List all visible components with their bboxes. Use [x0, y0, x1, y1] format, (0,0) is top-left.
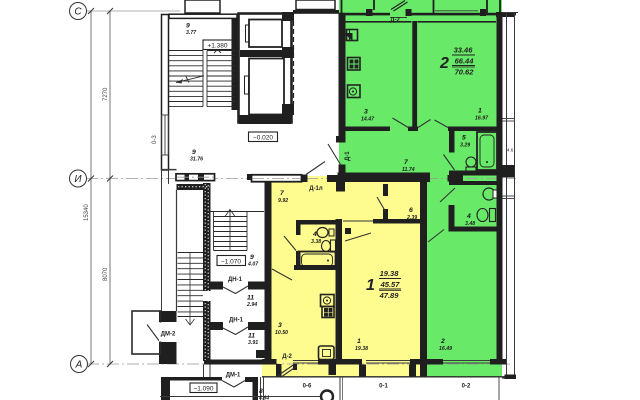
svg-text:1: 1: [478, 108, 482, 115]
svg-text:ДН-1: ДН-1: [228, 277, 243, 283]
svg-text:2: 2: [440, 338, 445, 345]
svg-text:47.89: 47.89: [379, 291, 400, 300]
svg-text:8: 8: [259, 388, 263, 395]
svg-text:70.62: 70.62: [455, 68, 475, 77]
svg-text:11: 11: [248, 333, 255, 340]
svg-text:3.48: 3.48: [465, 221, 475, 227]
svg-text:1: 1: [366, 277, 375, 294]
svg-text:9: 9: [186, 23, 190, 30]
svg-text:3.29: 3.29: [460, 143, 470, 149]
svg-text:15340: 15340: [84, 204, 90, 221]
svg-text:Д-2: Д-2: [282, 354, 292, 360]
svg-text:19.38: 19.38: [355, 346, 368, 352]
svg-text:ДН-1: ДН-1: [229, 318, 244, 324]
svg-text:1: 1: [357, 338, 361, 345]
svg-text:И: И: [74, 174, 82, 185]
svg-text:11.74: 11.74: [402, 167, 415, 173]
svg-text:10.50: 10.50: [275, 330, 288, 336]
svg-text:66.44: 66.44: [455, 57, 475, 66]
svg-text:4: 4: [466, 213, 471, 220]
svg-text:4.07: 4.07: [247, 262, 259, 268]
svg-text:9: 9: [192, 149, 196, 156]
svg-text:−1.070: −1.070: [221, 259, 241, 266]
svg-text:16.49: 16.49: [439, 346, 452, 352]
svg-text:14.47: 14.47: [361, 117, 375, 123]
svg-text:33.46: 33.46: [454, 46, 474, 55]
svg-text:3: 3: [278, 322, 282, 329]
svg-text:ДМ-1: ДМ-1: [226, 373, 241, 379]
svg-text:0-3: 0-3: [152, 135, 158, 144]
svg-text:3.77: 3.77: [186, 30, 197, 36]
svg-text:9.92: 9.92: [278, 198, 288, 204]
svg-text:ДМ-2: ДМ-2: [161, 332, 176, 338]
svg-text:6: 6: [409, 207, 413, 214]
svg-text:4.6: 4.6: [507, 148, 514, 153]
svg-text:0-2: 0-2: [462, 384, 471, 390]
svg-text:2: 2: [439, 55, 449, 72]
svg-text:0-6: 0-6: [303, 384, 312, 390]
svg-text:16.97: 16.97: [475, 116, 489, 122]
svg-text:4.64: 4.64: [258, 396, 269, 400]
svg-text:0-1: 0-1: [379, 384, 388, 390]
svg-text:Д-2: Д-2: [390, 18, 400, 24]
svg-text:8070: 8070: [103, 267, 109, 281]
svg-text:Д-1л: Д-1л: [309, 186, 323, 192]
svg-text:3.91: 3.91: [248, 340, 258, 346]
svg-text:А: А: [75, 360, 83, 371]
svg-text:2.39: 2.39: [406, 215, 417, 221]
svg-text:7270: 7270: [103, 87, 109, 101]
svg-text:19.38: 19.38: [380, 269, 400, 278]
svg-text:11: 11: [247, 295, 254, 302]
svg-text:С: С: [74, 7, 82, 18]
svg-text:Д-1: Д-1: [345, 151, 351, 161]
svg-text:9: 9: [250, 254, 254, 261]
svg-text:5: 5: [462, 135, 466, 142]
svg-text:31.76: 31.76: [190, 157, 203, 163]
svg-text:2.94: 2.94: [246, 302, 257, 308]
svg-text:45.57: 45.57: [380, 280, 401, 289]
svg-text:4: 4: [312, 231, 317, 238]
svg-text:+1.380: +1.380: [207, 43, 227, 50]
svg-text:−0.020: −0.020: [253, 135, 273, 142]
svg-text:3: 3: [364, 109, 368, 116]
svg-text:−1.090: −1.090: [193, 386, 213, 393]
svg-text:3.38: 3.38: [311, 239, 321, 245]
